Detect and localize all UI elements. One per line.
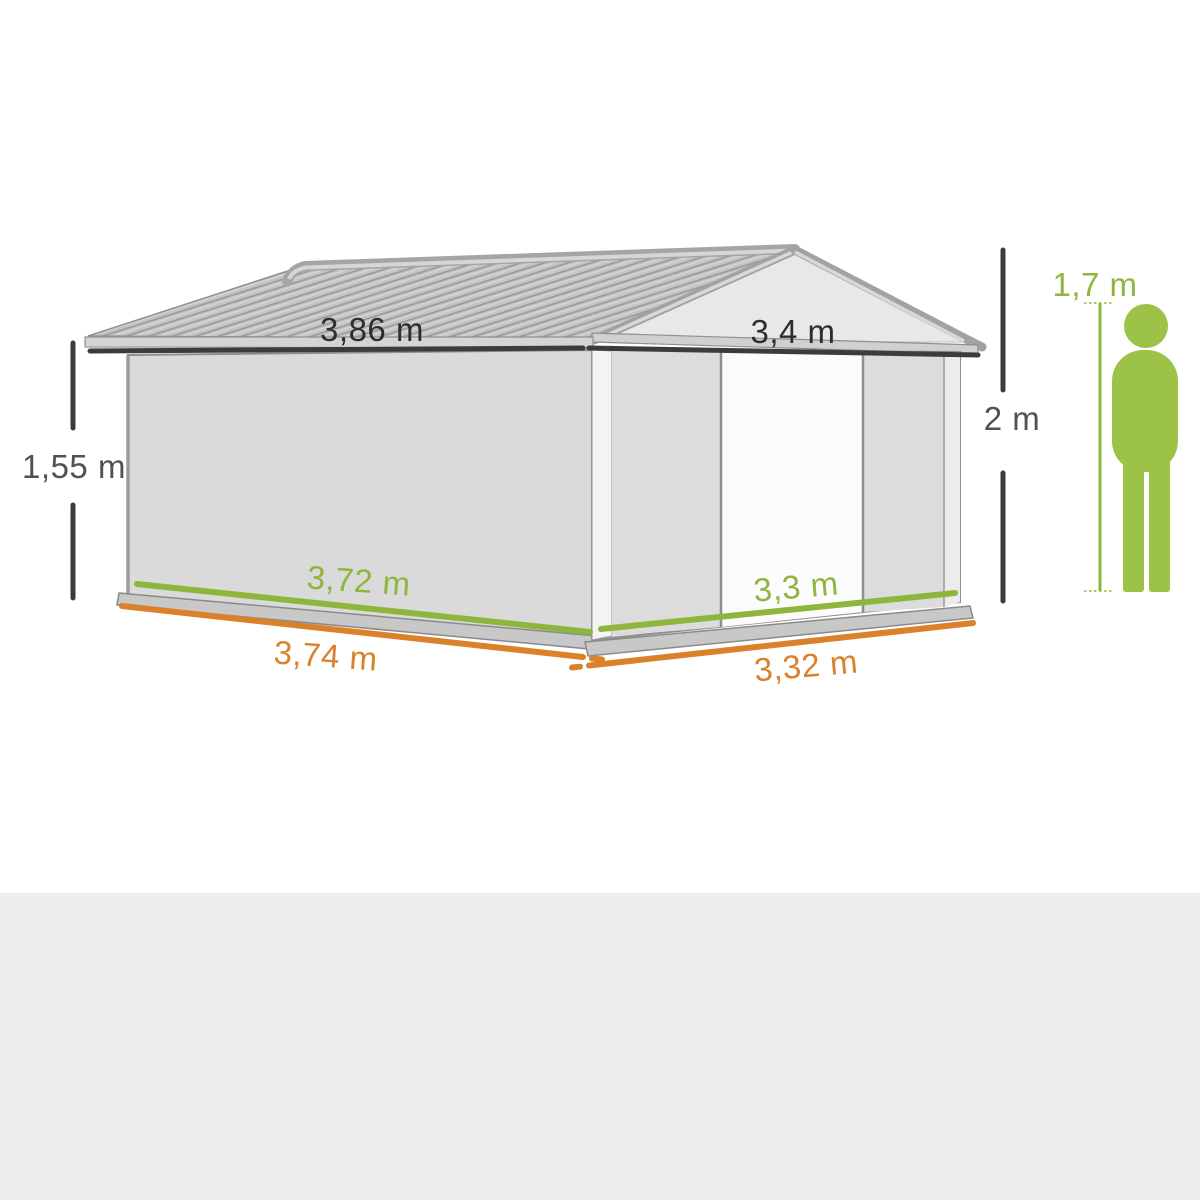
base-side-dimension-line-dash xyxy=(592,659,602,660)
person-height-line-group xyxy=(1084,303,1113,591)
wall-height-dimension-label: 1,55 m xyxy=(22,448,126,485)
person-silhouette-icon xyxy=(1112,304,1178,592)
outer-side-dimension-line xyxy=(90,348,583,351)
front-wall-right-panel xyxy=(863,353,944,612)
inner-front-dimension-label: 3,3 m xyxy=(752,564,840,608)
person-head xyxy=(1124,304,1168,348)
base-front-dimension-line-dash xyxy=(572,667,580,668)
outer-side-dimension-label: 3,86 m xyxy=(320,311,424,348)
front-wall-right-corner-strip xyxy=(944,352,960,607)
outer-front-dimension-label: 3,4 m xyxy=(750,313,835,350)
overall-height-dimension-label: 2 m xyxy=(984,400,1041,437)
shed-dimension-infographic: 3,86 m 3,4 m 1,55 m 2 m 1,7 m 3,72 m 3,7… xyxy=(0,0,1200,1200)
person-left-leg xyxy=(1123,458,1144,592)
info-panel: Anmerkung: Bevor Sie dieses Produkt kauf… xyxy=(0,893,1200,1200)
person-height-dimension-label: 1,7 m xyxy=(1052,266,1137,303)
person-right-leg xyxy=(1149,458,1170,592)
base-side-dimension-label: 3,74 m xyxy=(273,633,379,677)
front-wall-left-panel xyxy=(612,351,721,636)
base-front-dimension-label: 3,32 m xyxy=(753,643,860,689)
inner-side-dimension-label: 3,72 m xyxy=(306,558,412,602)
person-torso xyxy=(1112,350,1178,472)
front-wall-left-corner-strip xyxy=(592,350,612,640)
